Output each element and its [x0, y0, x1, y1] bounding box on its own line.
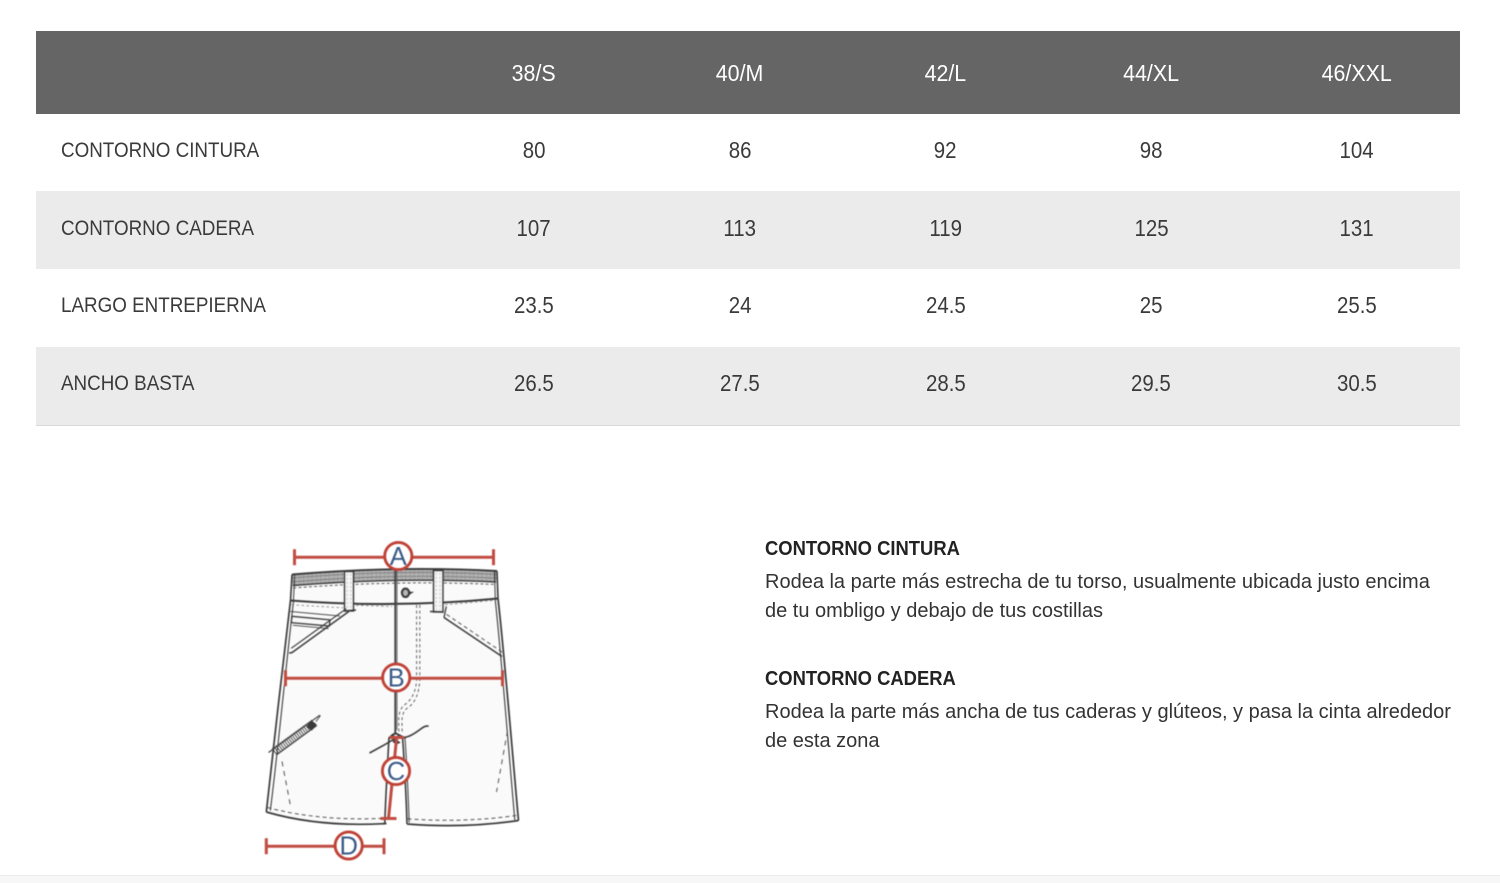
svg-text:B: B: [388, 665, 405, 693]
svg-text:A: A: [390, 543, 407, 571]
svg-text:D: D: [339, 833, 357, 861]
svg-text:C: C: [387, 758, 405, 786]
